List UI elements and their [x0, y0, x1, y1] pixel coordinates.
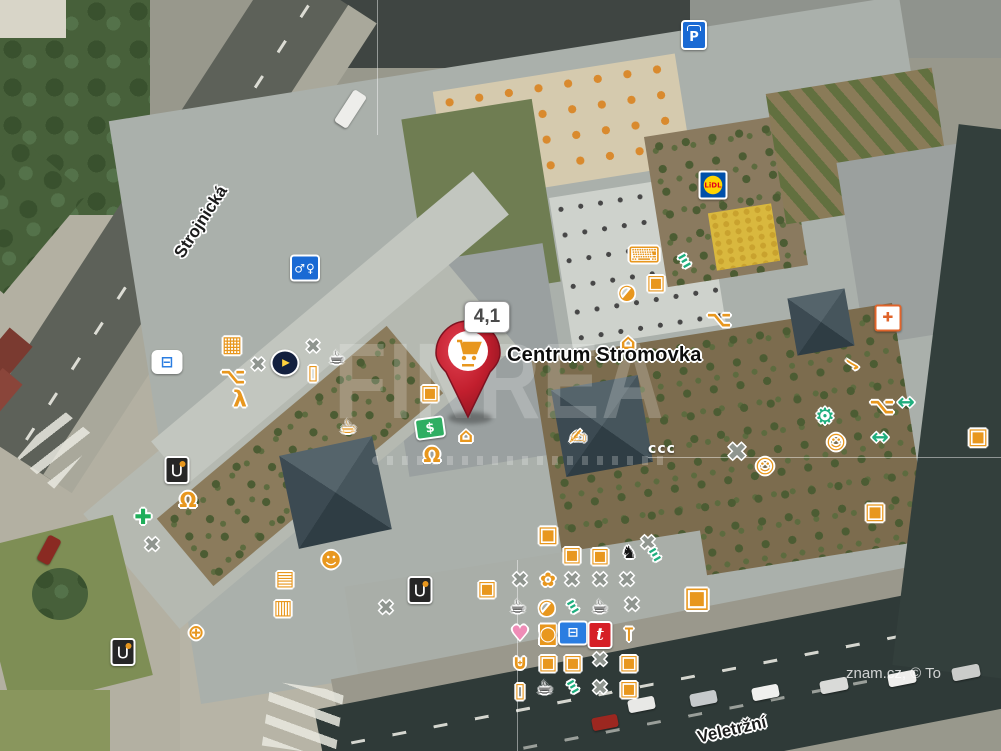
tree [32, 568, 88, 620]
restaurant-icon[interactable]: ✖ [564, 569, 580, 591]
glass-pyramid [279, 436, 392, 549]
mobile-phone-icon[interactable]: ▯ [514, 678, 525, 702]
mobile-phone-icon[interactable]: ▯ [307, 360, 318, 384]
parcel-box-icon[interactable]: ▣ [563, 542, 582, 566]
cafe-icon[interactable]: ☕ [537, 678, 553, 699]
car-wash-icon[interactable]: ⊟ [558, 621, 588, 646]
vending-kiosk-icon[interactable]: ▦ [222, 333, 243, 358]
hiking-icon[interactable]: λ [233, 388, 247, 413]
crosswalk [262, 681, 344, 751]
place-label[interactable]: Centrum Stromovka [507, 344, 702, 367]
yellow-flowerbed [708, 203, 780, 270]
covered-parking-icon[interactable]: P [681, 20, 707, 50]
restaurant-icon[interactable]: ✖ [592, 677, 608, 699]
restaurant-icon[interactable]: ✖ [378, 597, 394, 619]
baby-goods-icon[interactable]: ⊺ [624, 624, 634, 646]
shopping-bag-icon[interactable]: ⌂ [459, 423, 473, 447]
rating-badge[interactable]: 4,1 [464, 301, 510, 333]
jewelry-ring-icon[interactable]: Ω [179, 488, 196, 512]
jewelry-ring-icon[interactable]: Ω [423, 443, 440, 467]
cafe-icon[interactable]: ☕ [510, 597, 526, 618]
briefcase-icon[interactable]: ▥ [274, 595, 293, 619]
lidl-logo[interactable]: LiDL [699, 171, 728, 200]
bus-stop-icon[interactable]: ⊟ [152, 350, 183, 374]
juice-bar-icon[interactable]: ⋃ [111, 638, 136, 666]
toy-store-icon[interactable]: ☻ [321, 548, 342, 572]
parcel-box-icon[interactable]: ▣ [564, 650, 583, 674]
game-controller-icon[interactable]: ⌨ [628, 244, 660, 269]
stationery-icon[interactable]: ▤ [276, 566, 295, 590]
parcel-box-icon[interactable]: ▣ [539, 650, 558, 674]
restaurant-icon[interactable]: ✖ [305, 337, 320, 358]
laundry-icon[interactable]: ◙ [538, 621, 557, 645]
tobacco-shop-icon[interactable]: t [588, 621, 613, 649]
parcel-box-icon[interactable]: ▣ [538, 523, 559, 548]
juice-bar-icon[interactable]: ⋃ [165, 456, 190, 484]
chest-shop-icon[interactable]: ▣ [647, 270, 666, 294]
place-pin[interactable] [434, 320, 502, 420]
restaurant-icon[interactable]: ✖ [144, 534, 160, 556]
glass-pyramid [787, 288, 854, 355]
fitness-icon[interactable]: ↔ [871, 425, 889, 449]
play-media-icon[interactable]: ▶ [271, 350, 300, 377]
parcel-box-icon[interactable]: ▣ [620, 676, 639, 700]
fitness-icon[interactable]: ↔ [897, 390, 915, 414]
restaurant-icon[interactable]: ✖ [250, 355, 265, 376]
clinic-icon[interactable]: ✚ [875, 305, 902, 332]
restroom-icon[interactable]: ♂♀ [290, 255, 320, 282]
tile-seam [648, 457, 1001, 458]
parcel-box-icon[interactable]: ▣ [620, 650, 639, 674]
florist-icon[interactable]: ✿ [540, 569, 556, 591]
beauty-heart-icon[interactable]: ♥ [511, 621, 529, 645]
lawn [0, 690, 110, 751]
parcel-box-icon[interactable]: ▣ [478, 576, 497, 600]
parcel-box-icon[interactable]: ▣ [591, 543, 610, 567]
grocery-basket-icon[interactable]: ⊎ [512, 650, 528, 674]
kids-face-icon[interactable]: ☺ [755, 456, 775, 478]
basketball-icon[interactable]: ⊕ [188, 620, 205, 644]
restaurant-icon[interactable]: ✖ [512, 569, 528, 591]
shoe-store-icon[interactable]: ✓ [840, 354, 865, 374]
restaurant-icon[interactable]: ✖ [727, 438, 747, 466]
building-top-left [0, 0, 66, 38]
tile-seam [377, 0, 378, 135]
blackbird-icon[interactable]: ♞ [621, 543, 636, 563]
clothes-hanger-icon[interactable]: ⌥ [220, 365, 245, 390]
restaurant-icon[interactable]: ✖ [592, 649, 608, 671]
clothes-hanger-icon[interactable]: ⌥ [869, 395, 894, 420]
clothes-hanger-icon[interactable]: ⌥ [706, 308, 731, 333]
pin-graphic [434, 320, 502, 420]
services-gear-icon[interactable]: ⚙ [815, 405, 835, 430]
teahouse-icon[interactable]: ☕ [339, 416, 356, 438]
map-copyright: znam.cz, © To [846, 665, 941, 682]
parcel-depot-icon[interactable]: ▣ [684, 581, 710, 614]
restaurant-icon[interactable]: ✖ [592, 569, 608, 591]
ccc-store-label[interactable]: ccc [648, 441, 676, 457]
parcel-box-icon[interactable]: ▣ [865, 500, 886, 525]
restaurant-icon[interactable]: ✖ [624, 594, 640, 616]
hat-face-icon[interactable]: ☺ [826, 432, 846, 454]
juice-bar-icon[interactable]: ⋃ [408, 576, 433, 604]
hardware-tool-icon[interactable]: ✍ [569, 425, 587, 449]
cafe-icon[interactable]: ☕ [592, 597, 608, 618]
parcel-box-icon[interactable]: ▣ [968, 425, 989, 450]
watermark-subtext [372, 456, 672, 465]
cafe-icon[interactable]: ☕ [329, 348, 345, 369]
restaurant-icon[interactable]: ✖ [619, 569, 635, 591]
map-canvas[interactable]: FINREA P♂♀LiDL⊟▦⌥✖▶✖▯☕λ☕▣$⌂Ω⌨Ξ▣◑⌥⌂✍ccc✖☺… [0, 0, 1001, 751]
pharmacy-icon[interactable]: ✚ [134, 505, 152, 529]
